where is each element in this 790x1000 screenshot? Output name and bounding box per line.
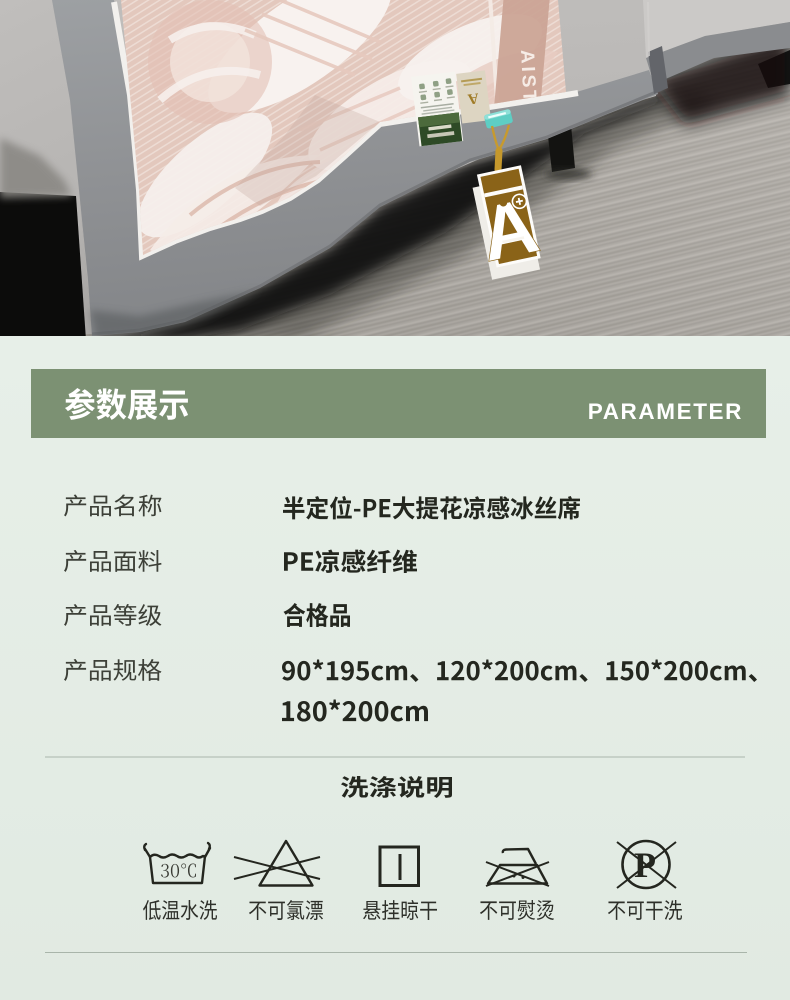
svg-text:PARAMETER: PARAMETER <box>588 399 743 424</box>
svg-text:P: P <box>634 845 656 885</box>
svg-text:A: A <box>467 89 480 106</box>
